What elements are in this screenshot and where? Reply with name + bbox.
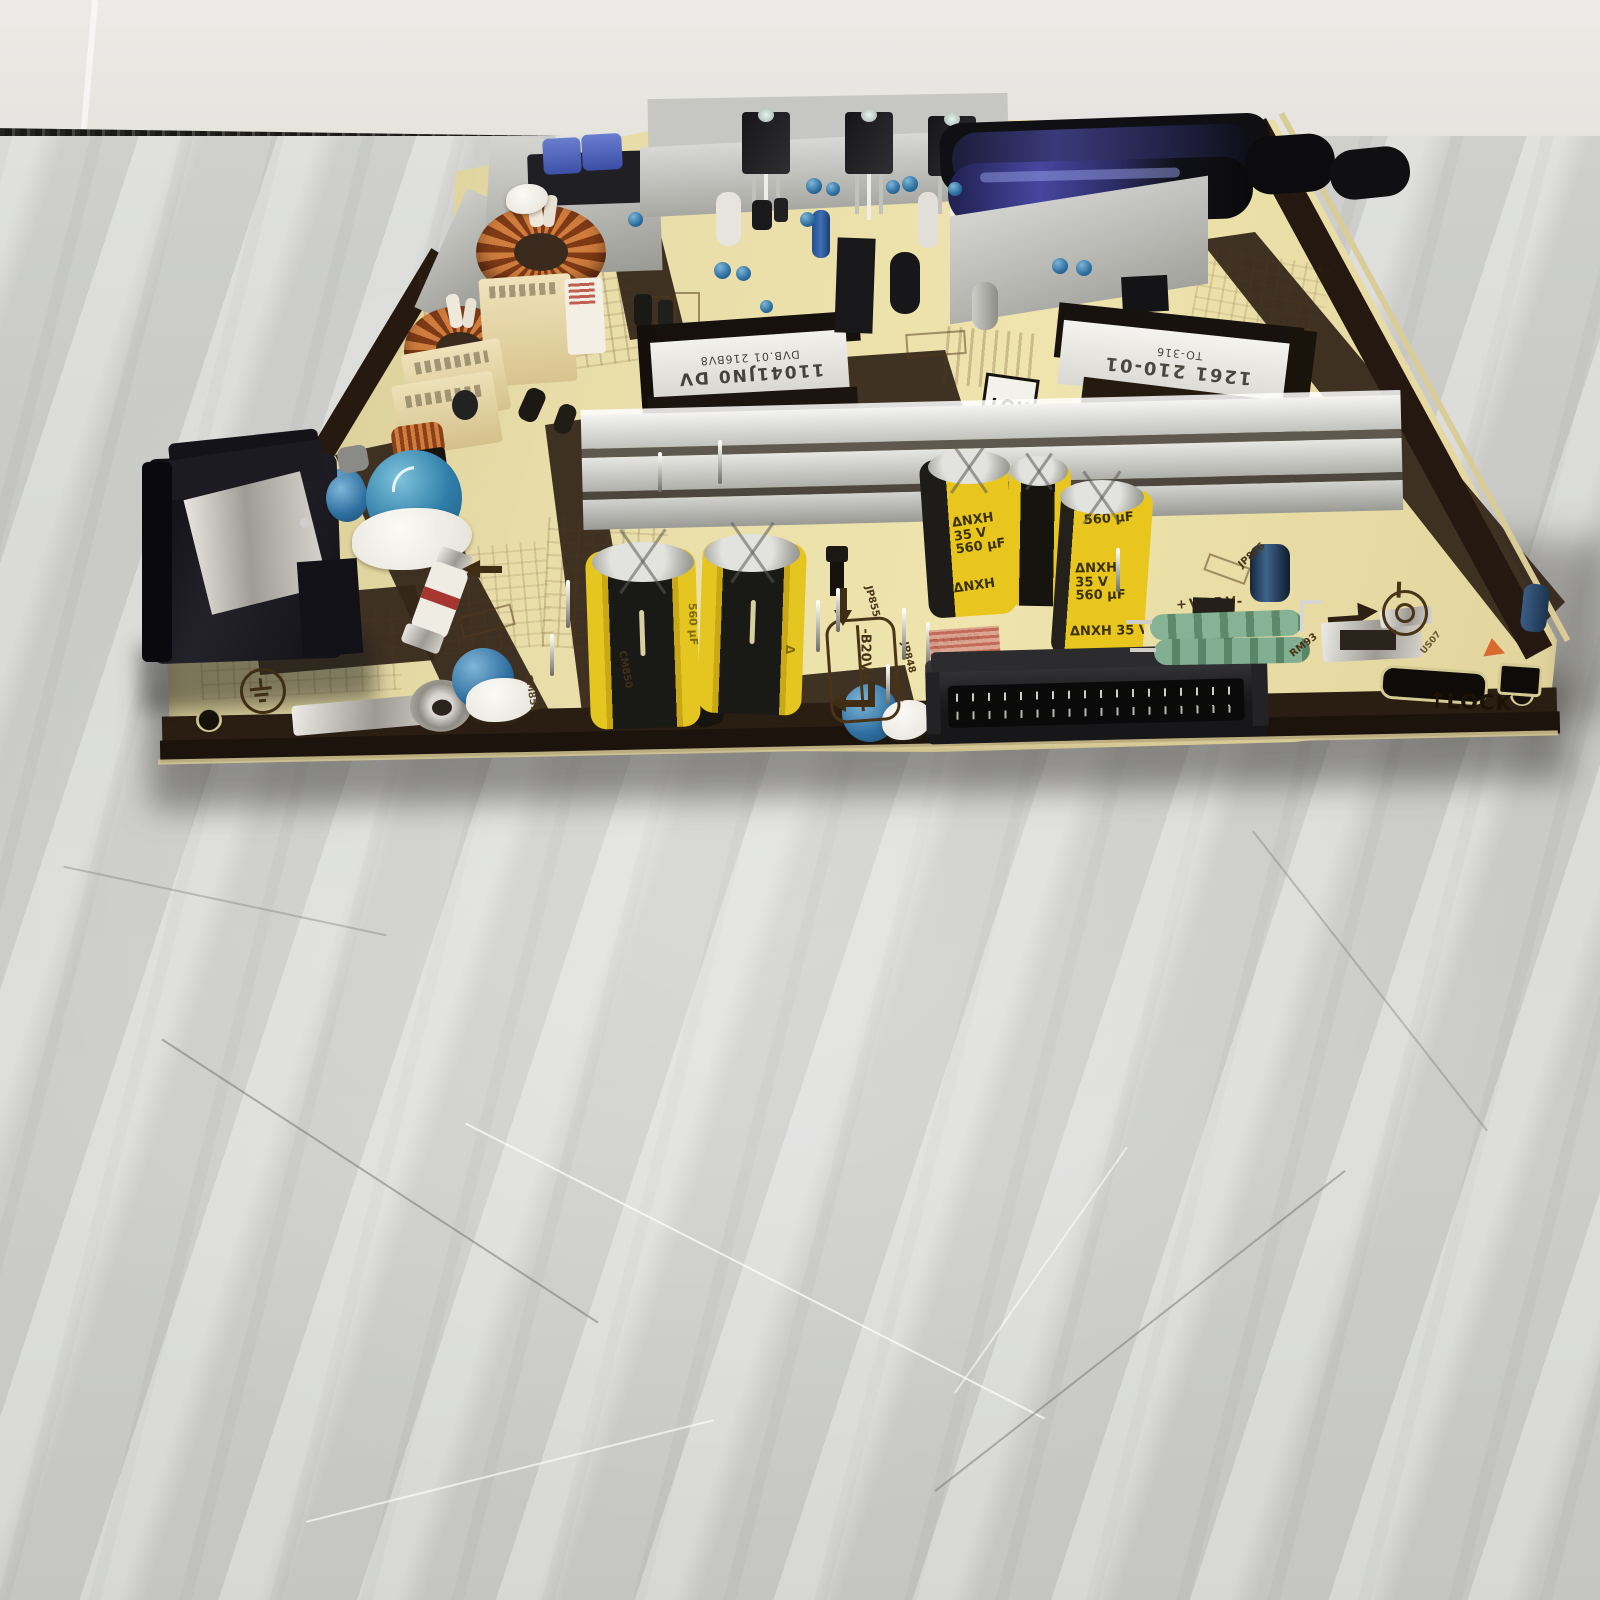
blue-ceramic-capacitor [760, 300, 773, 313]
blue-ceramic-capacitor [1052, 258, 1068, 274]
ac-inlet-front-flange [142, 462, 172, 662]
ground-line [259, 699, 266, 703]
resistor-lead-bent [1300, 600, 1322, 604]
test-pin [718, 440, 722, 484]
film-capacitor-printing [489, 282, 560, 299]
silk-corner-arrow-icon [830, 694, 846, 712]
black-small-transistor [634, 294, 652, 326]
blue-ceramic-capacitor [628, 212, 643, 227]
blue-film-capacitor [542, 137, 582, 175]
capacitor-print-mid: ΔNXH 35 V 560 µF [951, 510, 1006, 557]
lock-marking: ↑LOCK [1428, 689, 1513, 717]
blue-ceramic-capacitor [826, 182, 840, 196]
blue-ceramic-capacitor [948, 182, 962, 196]
black-heatsink-tab [834, 237, 875, 333]
test-pin [566, 580, 570, 628]
orange-triangle-sticker [1481, 637, 1505, 657]
green-resistor [1150, 609, 1303, 640]
toroid-center [514, 233, 568, 271]
resistor-lead [1126, 620, 1152, 624]
silkscreen-outline [905, 330, 967, 358]
ac-inlet-lower-block [297, 558, 363, 657]
blue-capacitor-edge [1520, 583, 1551, 633]
test-pin [816, 600, 820, 652]
white-cylindrical-component [716, 192, 741, 246]
capacitor-print-low: ΔNXH [953, 577, 996, 596]
capacitor-top-vent [592, 542, 694, 582]
test-pin [550, 634, 554, 676]
b20v-label: -B20V+ [858, 628, 873, 682]
capacitor-top-vent [1060, 480, 1144, 514]
capacitor-vent-slit [749, 600, 756, 644]
capacitor-top-vent [704, 534, 800, 572]
test-pin [658, 452, 662, 492]
transistor-leg [867, 174, 871, 220]
ground-line [259, 678, 263, 688]
ground-line [254, 692, 268, 696]
blue-ceramic-capacitor [1076, 260, 1092, 276]
transistor-screw [758, 108, 774, 122]
blue-ceramic-capacitor [714, 262, 731, 279]
silk-arrow-left-stem [478, 566, 502, 573]
capacitor-top-vent [928, 450, 1010, 484]
nxh-logo: Δ [1075, 561, 1085, 576]
lock-label: LOCK [1446, 689, 1513, 715]
blue-ceramic-capacitor [902, 176, 918, 192]
blue-film-capacitor [581, 133, 623, 171]
blue-ceramic-capacitor [800, 212, 815, 227]
lock-arrow-icon: ↑ [1428, 689, 1447, 715]
capacitor-top-vent [1010, 456, 1068, 486]
black-electrolytic-capacitor [890, 252, 920, 314]
blue-disc-capacitor-small [326, 474, 368, 522]
test-pin [1116, 548, 1120, 592]
black-grommet [452, 390, 478, 420]
brand-text: NXH [1085, 561, 1117, 577]
blue-ceramic-capacitor [736, 266, 751, 281]
ac-inlet-screw-glint [300, 518, 310, 528]
silk-corner-arrow-vert [868, 682, 875, 707]
brand-text: NXH [1080, 624, 1112, 640]
test-pin [836, 588, 840, 632]
resistor-lead-bent [1300, 602, 1304, 632]
metal-cylinder-capacitor [972, 282, 998, 330]
capacitor-print-low: ΔNXH 35 V [1070, 624, 1149, 639]
transistor-leg [879, 174, 883, 214]
black-test-pin-head [826, 546, 848, 562]
mounting-hole [196, 708, 222, 732]
connector-slot [948, 678, 1245, 728]
silk-arrow-down-stem [840, 588, 847, 612]
test-pin [902, 608, 906, 660]
black-small-transistor [774, 198, 788, 222]
clip-notch [1340, 630, 1396, 650]
brand-text: NXH [963, 576, 997, 595]
capacitor-side-print: Δ [783, 645, 796, 655]
hand-icon-finger [1397, 582, 1402, 598]
blue-ceramic-capacitor [806, 178, 822, 194]
transistor-leg [855, 174, 859, 214]
small-black-box-component [1121, 275, 1169, 313]
blue-ceramic-capacitor [886, 180, 900, 194]
capacitor-vent-slit [639, 610, 646, 656]
nxh-logo: Δ [1070, 624, 1080, 639]
test-pin [886, 664, 890, 704]
transistor-screw [861, 108, 877, 122]
red-stamp-mark [568, 281, 595, 304]
connector-side-tab [1251, 664, 1269, 726]
white-component-with-red-stamp [564, 277, 606, 355]
black-small-transistor [752, 200, 772, 230]
photo-of-power-supply-board: 11041JN0 DV DVB.01 216BV8 1261 210-01 TO… [0, 0, 1600, 1600]
film-capacitor-printing [414, 350, 489, 375]
black-capacitor-end [1243, 132, 1337, 196]
hand-icon-inner-circle [1393, 601, 1416, 624]
connector-side-tab [925, 672, 941, 734]
resistor-lead [1130, 648, 1156, 652]
white-cylindrical-component [918, 192, 938, 248]
green-resistor [1154, 637, 1310, 666]
transistor-leg [938, 176, 942, 214]
